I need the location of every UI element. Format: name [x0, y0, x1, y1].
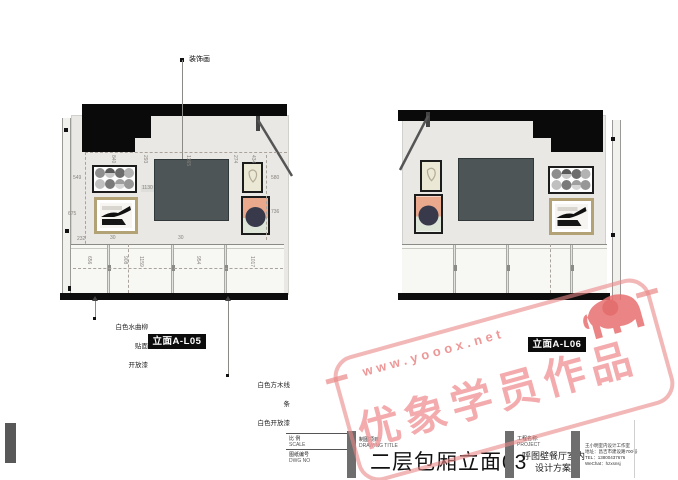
elevation-tag-a-l06: 立面A-L06	[528, 337, 586, 352]
material-note-right: 白色方木线 条 白色开放漆	[222, 371, 290, 438]
abstract-artwork	[94, 197, 138, 234]
wall-edge	[62, 118, 71, 300]
elevation-tag-a-l05: 立面A-L05	[148, 334, 206, 349]
marker-dot	[65, 229, 69, 233]
panel-divider	[171, 245, 174, 294]
sheet-edge-bar	[5, 423, 16, 463]
sketch-icon	[244, 164, 261, 191]
ceiling-bulkhead	[551, 110, 603, 152]
decor-painting-label: 装饰画	[189, 54, 210, 64]
wall-edge	[612, 120, 621, 300]
ceiling-step	[533, 110, 551, 138]
dim-label: 908	[122, 256, 127, 264]
dim-label: 30	[178, 236, 184, 241]
abstract-artwork	[549, 198, 594, 235]
stamp-tick	[325, 374, 348, 385]
brush-art-icon	[555, 204, 588, 229]
dim-label: 1365	[185, 155, 190, 166]
block-end-line	[634, 420, 635, 478]
panel-divider	[506, 245, 509, 294]
project-label-en: PROJECT	[517, 442, 540, 448]
dim-label: 232	[77, 237, 85, 242]
dim-label: 1130	[141, 185, 154, 192]
sketch-icon	[422, 162, 440, 190]
circle-art-icon	[416, 196, 441, 232]
dim-label: 549	[73, 176, 81, 181]
circle-art-icon	[243, 198, 268, 233]
panel-trim-line	[402, 248, 607, 249]
scale-label-en: SCALE	[289, 442, 305, 448]
marker-dot	[64, 128, 68, 132]
dim-label: 675	[68, 212, 76, 217]
panel-divider	[570, 245, 573, 294]
marker-dot	[611, 233, 615, 237]
ceiling-bulkhead	[82, 104, 135, 152]
wainscot-paneling	[71, 244, 284, 295]
circles-art-icon	[550, 168, 592, 192]
dim-label: 434	[250, 155, 255, 163]
studio-info: 王小明室内设计工作室 地址：昌吉市建设路700号 TEL：13800437676…	[585, 443, 638, 467]
panel-divider	[453, 245, 456, 294]
leader-line	[228, 301, 229, 375]
dim-label: 30	[110, 236, 116, 241]
dim-label: 274	[232, 155, 237, 163]
dim-label: 1017	[249, 256, 254, 267]
dimension-line	[73, 268, 283, 269]
dim-label: 1159	[138, 256, 143, 267]
dim-label: 736	[271, 210, 279, 215]
panel-divider	[224, 245, 227, 294]
project-name-line2: 设计方案	[535, 461, 571, 474]
sketch-artwork	[420, 160, 442, 192]
dim-label: 580	[271, 176, 279, 181]
panel-divider	[107, 245, 110, 294]
panel-trim-line	[71, 248, 284, 249]
dim-label: 954	[195, 256, 200, 264]
circle-artwork	[414, 194, 443, 234]
brush-art-icon	[100, 203, 132, 228]
dark-wall-panel	[458, 158, 534, 221]
wainscot-paneling	[402, 244, 607, 295]
dark-wall-panel	[154, 159, 229, 221]
dim-label: 293	[142, 155, 147, 163]
geometric-artwork	[548, 166, 594, 194]
sketch-artwork	[242, 162, 263, 193]
divider-line	[286, 449, 348, 450]
dimension-line	[85, 152, 287, 153]
hidden-line	[550, 244, 551, 293]
circles-art-icon	[94, 167, 135, 191]
geometric-artwork	[92, 165, 137, 193]
dimension-line	[266, 155, 267, 240]
ceiling-step	[135, 104, 151, 138]
stamp-tick	[636, 288, 659, 299]
dwg-no-label-en: DWG NO	[289, 458, 310, 464]
drawing-sheet: 装饰画	[0, 0, 678, 480]
block-bar	[571, 431, 580, 478]
material-note-left: 白色水曲柳 贴面 开放漆	[80, 313, 148, 380]
dim-label: 656	[86, 256, 91, 264]
dim-label: 840	[110, 155, 115, 163]
divider-line	[286, 433, 348, 434]
watermark-text: 优象学员作品	[350, 315, 675, 459]
studio-wechat: WeChat：hzxsnsj	[585, 461, 638, 467]
marker-dot	[611, 137, 615, 141]
